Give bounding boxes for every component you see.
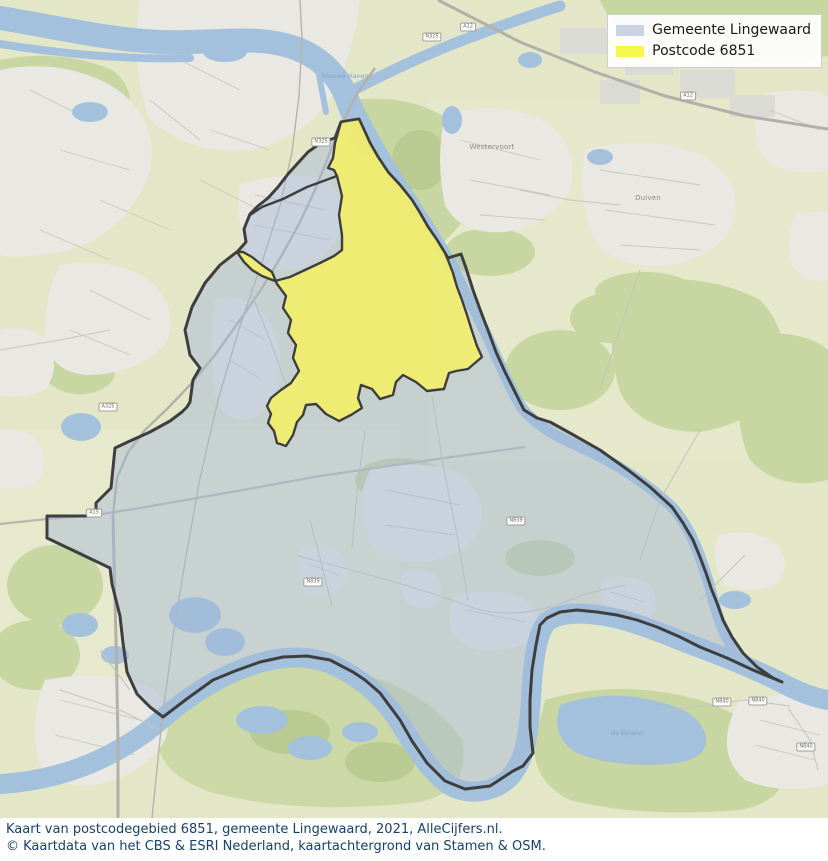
caption-line-1: Kaart van postcodegebied 6851, gemeente … xyxy=(6,821,828,838)
town-label: Westervoort xyxy=(470,143,515,151)
legend-row-postcode: Postcode 6851 xyxy=(616,43,811,59)
road-shield: A15 xyxy=(86,509,102,518)
legend-swatch-postcode xyxy=(616,46,644,57)
road-shield: N840 xyxy=(796,743,815,752)
screenshot-root: Westervoort Duiven Nieuwe Haven de Bijla… xyxy=(0,0,828,861)
road-shield: A12 xyxy=(460,23,476,32)
legend-row-gemeente: Gemeente Lingewaard xyxy=(616,22,811,38)
map-caption: Kaart van postcodegebied 6851, gemeente … xyxy=(0,818,828,861)
road-shield: A12 xyxy=(680,92,696,101)
legend-swatch-gemeente xyxy=(616,25,644,36)
road-shield: A325 xyxy=(99,403,118,412)
road-shield: N839 xyxy=(506,517,525,526)
map-canvas: Westervoort Duiven Nieuwe Haven de Bijla… xyxy=(0,0,828,818)
town-label: Duiven xyxy=(635,194,661,202)
road-shield: N840 xyxy=(748,697,767,706)
map-legend: Gemeente Lingewaard Postcode 6851 xyxy=(607,14,822,68)
road-shield: N839 xyxy=(303,578,322,587)
road-shield: N325 xyxy=(311,138,330,147)
water-label: Nieuwe Haven xyxy=(321,72,368,80)
road-shield: N325 xyxy=(422,33,441,42)
legend-label-gemeente: Gemeente Lingewaard xyxy=(652,22,811,38)
legend-label-postcode: Postcode 6851 xyxy=(652,43,755,59)
map-svg xyxy=(0,0,828,818)
road-shield: N840 xyxy=(712,698,731,707)
water-label: de Bijland xyxy=(611,729,643,737)
caption-line-2: © Kaartdata van het CBS & ESRI Nederland… xyxy=(6,838,828,855)
